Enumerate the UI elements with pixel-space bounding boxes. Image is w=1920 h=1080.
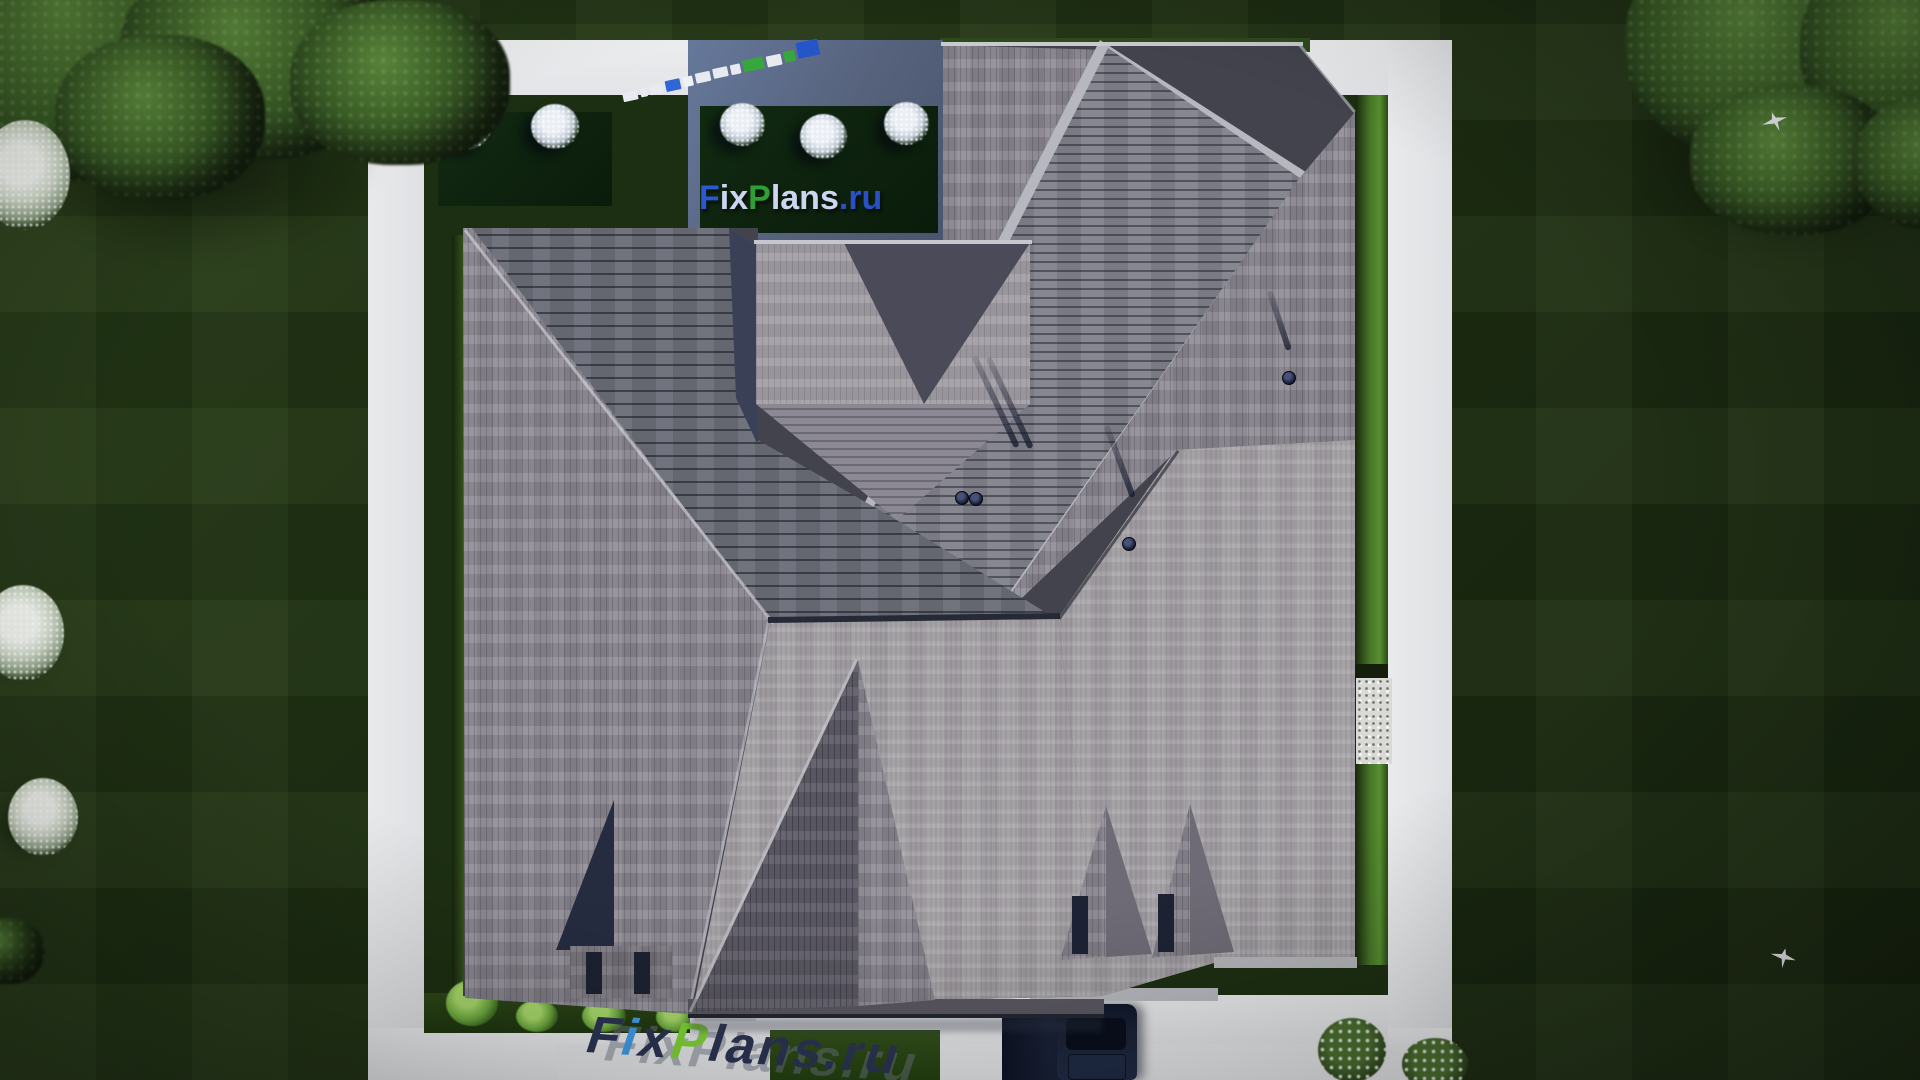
roof-vent-pipe [955, 491, 969, 505]
right-hedge-strip [1355, 95, 1388, 965]
white-shrub [8, 778, 78, 856]
fixplans-logo: FixPlans.ru [699, 179, 939, 218]
gravel-pad [1356, 678, 1392, 764]
left-dormer-window [634, 952, 650, 994]
flower-shrub [800, 114, 847, 159]
flower-shrub [884, 102, 929, 145]
roof-vent-pipe [1122, 537, 1136, 551]
eave-ground-shadow [690, 1018, 1102, 1032]
green-bush [516, 1000, 558, 1032]
left-dormer-window [586, 952, 602, 994]
car-roof [1068, 1054, 1126, 1080]
tree-canopy [55, 35, 265, 200]
left-hedge-line [452, 235, 464, 995]
fascia-right-eave [1214, 957, 1357, 968]
wing-eave-trim [941, 42, 1303, 46]
flower-shrub [531, 104, 579, 149]
right-dormer-a-window [1072, 896, 1088, 954]
tower-ridge-trim [754, 240, 1032, 244]
aerial-house-render: FixPlans.ru FixPlans.ru [0, 0, 1920, 1080]
roof-vent-pipe [1282, 371, 1296, 385]
path-right-band [1388, 40, 1452, 1080]
right-dormer-b-window [1158, 894, 1174, 952]
tree-canopy [290, 0, 510, 165]
roof-vent-pipe [969, 492, 983, 506]
flowering-bush [1318, 1018, 1386, 1080]
path-left-band [368, 40, 424, 1080]
flower-shrub [720, 103, 765, 146]
